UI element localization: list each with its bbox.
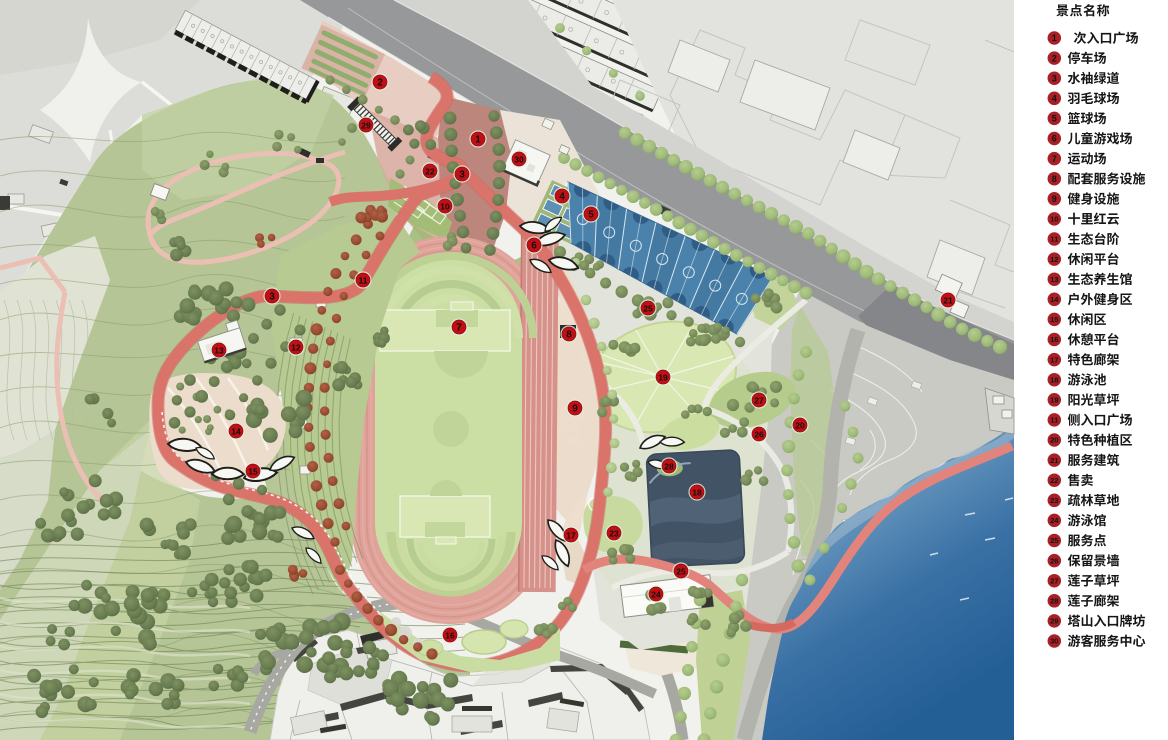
svg-text:11: 11 bbox=[1050, 235, 1059, 244]
svg-text:22: 22 bbox=[425, 166, 435, 176]
svg-text:12: 12 bbox=[291, 342, 301, 352]
svg-text:29: 29 bbox=[361, 120, 371, 130]
svg-text:25: 25 bbox=[643, 303, 653, 313]
svg-text:4: 4 bbox=[1052, 94, 1057, 104]
svg-text:24: 24 bbox=[651, 589, 661, 599]
svg-text:18: 18 bbox=[1050, 375, 1058, 384]
svg-text:6: 6 bbox=[531, 240, 537, 251]
svg-text:9: 9 bbox=[572, 403, 578, 414]
svg-text:24: 24 bbox=[1050, 516, 1059, 525]
svg-text:19: 19 bbox=[658, 372, 668, 382]
svg-text:11: 11 bbox=[359, 275, 368, 285]
svg-text:10: 10 bbox=[440, 201, 450, 211]
svg-text:14: 14 bbox=[231, 426, 241, 436]
svg-text:2: 2 bbox=[1052, 53, 1057, 63]
svg-text:2: 2 bbox=[377, 77, 383, 88]
svg-text:5: 5 bbox=[588, 209, 594, 220]
svg-text:16: 16 bbox=[445, 630, 455, 640]
svg-text:7: 7 bbox=[456, 322, 462, 333]
svg-text:26: 26 bbox=[1050, 556, 1058, 565]
svg-text:28: 28 bbox=[664, 461, 674, 471]
svg-text:3: 3 bbox=[269, 291, 275, 302]
svg-text:3: 3 bbox=[459, 169, 465, 180]
svg-text:30: 30 bbox=[514, 154, 524, 164]
svg-text:6: 6 bbox=[1052, 134, 1057, 144]
svg-text:30: 30 bbox=[1050, 637, 1058, 646]
svg-text:10: 10 bbox=[1050, 215, 1058, 224]
svg-text:5: 5 bbox=[1052, 114, 1057, 124]
svg-text:27: 27 bbox=[754, 395, 764, 405]
svg-text:3: 3 bbox=[1052, 73, 1057, 83]
svg-text:25: 25 bbox=[676, 566, 686, 576]
svg-text:11: 11 bbox=[1050, 416, 1059, 425]
svg-text:15: 15 bbox=[248, 466, 258, 476]
svg-text:16: 16 bbox=[1050, 335, 1058, 344]
svg-text:14: 14 bbox=[1050, 295, 1059, 304]
svg-text:1: 1 bbox=[1052, 33, 1057, 43]
svg-text:28: 28 bbox=[1050, 597, 1058, 606]
svg-text:12: 12 bbox=[1050, 255, 1058, 264]
svg-text:8: 8 bbox=[1052, 174, 1057, 184]
svg-text:29: 29 bbox=[1050, 617, 1058, 626]
svg-text:21: 21 bbox=[943, 295, 953, 305]
svg-text:25: 25 bbox=[1050, 536, 1059, 545]
svg-text:27: 27 bbox=[1050, 576, 1058, 585]
svg-text:1: 1 bbox=[475, 134, 481, 145]
svg-text:19: 19 bbox=[1050, 396, 1058, 405]
svg-text:22: 22 bbox=[1050, 476, 1058, 485]
svg-text:13: 13 bbox=[214, 345, 224, 355]
svg-text:17: 17 bbox=[1050, 355, 1058, 364]
svg-text:26: 26 bbox=[754, 429, 764, 439]
svg-text:8: 8 bbox=[566, 329, 572, 340]
svg-text:23: 23 bbox=[1050, 496, 1058, 505]
svg-text:9: 9 bbox=[1052, 194, 1057, 204]
svg-text:18: 18 bbox=[692, 487, 702, 497]
svg-text:4: 4 bbox=[559, 191, 565, 202]
svg-text:17: 17 bbox=[566, 530, 576, 540]
svg-text:13: 13 bbox=[1050, 275, 1058, 284]
svg-text:23: 23 bbox=[609, 528, 619, 538]
svg-text:21: 21 bbox=[1050, 456, 1059, 465]
svg-text:15: 15 bbox=[1050, 315, 1059, 324]
svg-text:20: 20 bbox=[795, 420, 805, 430]
svg-text:20: 20 bbox=[1050, 436, 1058, 445]
svg-text:7: 7 bbox=[1052, 154, 1057, 164]
